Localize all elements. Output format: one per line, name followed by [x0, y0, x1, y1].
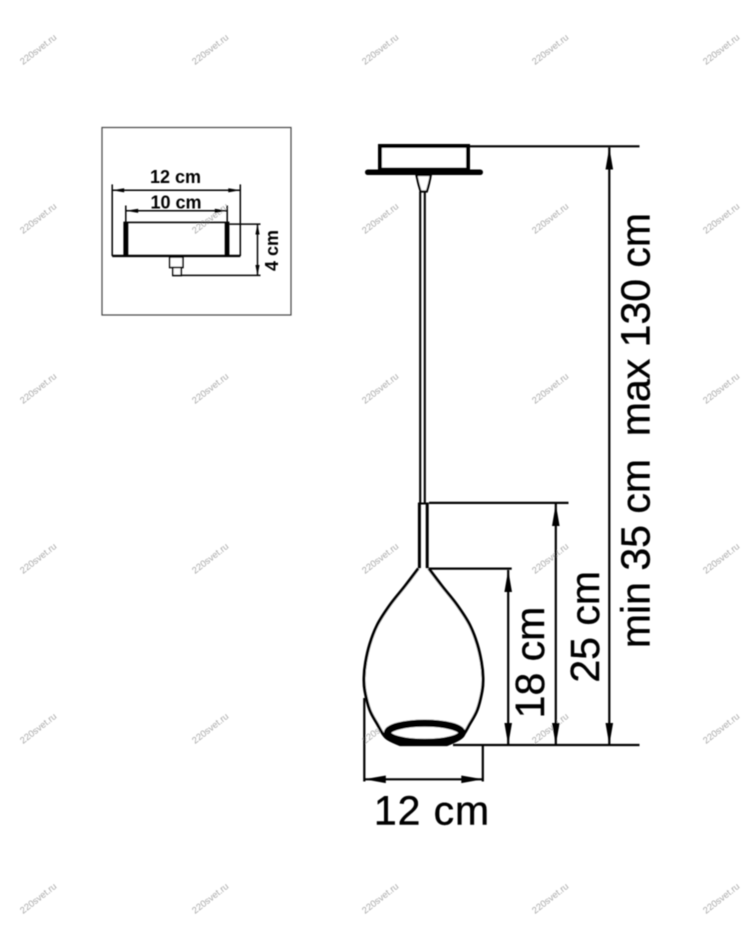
- svg-text:4 cm: 4 cm: [262, 230, 282, 271]
- svg-text:12 cm: 12 cm: [374, 788, 490, 834]
- svg-text:18 cm: 18 cm: [507, 607, 553, 719]
- svg-text:12 cm: 12 cm: [150, 167, 201, 187]
- svg-text:min 35 cm max 130 cm: min 35 cm max 130 cm: [612, 213, 658, 648]
- svg-text:25 cm: 25 cm: [562, 571, 608, 683]
- svg-text:10 cm: 10 cm: [150, 192, 201, 212]
